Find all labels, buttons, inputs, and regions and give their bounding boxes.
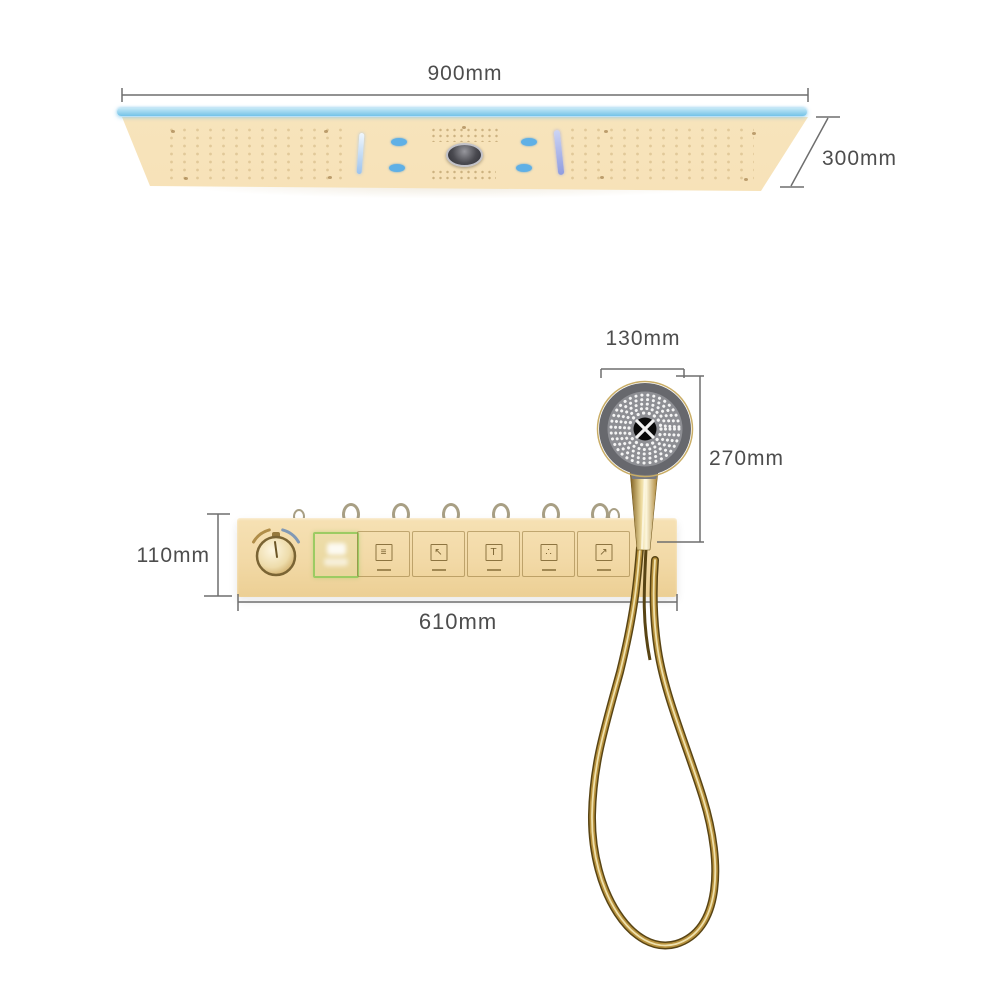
- panel-screw: [328, 176, 332, 179]
- spray-nozzle-field-right: [566, 126, 754, 182]
- hand-shower-icon: ↗: [595, 544, 612, 561]
- panel-screw: [744, 178, 748, 181]
- button-underline: [542, 569, 556, 571]
- head-face: [608, 392, 683, 467]
- control-button-handheld: ↗: [577, 531, 630, 577]
- temperature-display: [313, 532, 359, 578]
- rain-shower-icon: ≡: [375, 544, 392, 561]
- dimension-label-270mm: 270mm: [709, 447, 784, 471]
- body-jet-nozzle: [389, 164, 405, 172]
- dimension-line-900mm: [122, 88, 808, 102]
- hand-shower-neck: [626, 453, 664, 479]
- body-jet-nozzle: [521, 138, 537, 146]
- product-image-shower-system: ≡ ↖ T ∴ ↗: [0, 0, 1000, 1000]
- button-underline: [487, 569, 501, 571]
- hand-shower-head: [598, 382, 693, 477]
- dimension-label-130mm: 130mm: [600, 327, 686, 351]
- head-nozzle-dots: [611, 395, 679, 463]
- dimension-label-300mm: 300mm: [822, 147, 897, 171]
- panel-screw: [600, 176, 604, 179]
- head-center: [634, 418, 657, 441]
- head-center-cross: [637, 421, 653, 437]
- panel-screw: [171, 130, 175, 133]
- dimension-label-610mm: 610mm: [238, 609, 678, 635]
- button-underline: [377, 569, 391, 571]
- dimension-label-110mm: 110mm: [128, 544, 210, 568]
- center-spray-head: [446, 143, 483, 167]
- control-button-column: T: [467, 531, 520, 577]
- body-jet-nozzle: [516, 164, 532, 172]
- led-strip-top-edge: [117, 108, 807, 116]
- shower-hose: [592, 548, 715, 945]
- dimension-label-900mm: 900mm: [122, 62, 808, 86]
- panel-screw: [324, 130, 328, 133]
- waterfall-icon: ↖: [430, 544, 447, 561]
- head-gold-rim: [598, 382, 693, 477]
- display-glow: [324, 558, 348, 566]
- button-underline: [597, 569, 611, 571]
- display-glow: [327, 543, 346, 555]
- nozzle-row-upper: [430, 127, 500, 142]
- panel-screw: [184, 177, 188, 180]
- control-button-rain: ≡: [357, 531, 410, 577]
- panel-screw: [604, 130, 608, 133]
- spray-nozzle-field-left: [165, 126, 351, 182]
- column-spray-icon: T: [485, 544, 502, 561]
- nozzle-row-lower: [430, 169, 496, 181]
- panel-screw: [462, 126, 466, 129]
- control-button-waterfall: ↖: [412, 531, 465, 577]
- dimension-line-130mm: [601, 369, 684, 378]
- control-button-mist: ∴: [522, 531, 575, 577]
- mist-spray-icon: ∴: [540, 544, 557, 561]
- button-underline: [432, 569, 446, 571]
- panel-screw: [752, 132, 756, 135]
- head-outer-ring: [599, 383, 691, 475]
- body-jet-nozzle: [391, 138, 407, 146]
